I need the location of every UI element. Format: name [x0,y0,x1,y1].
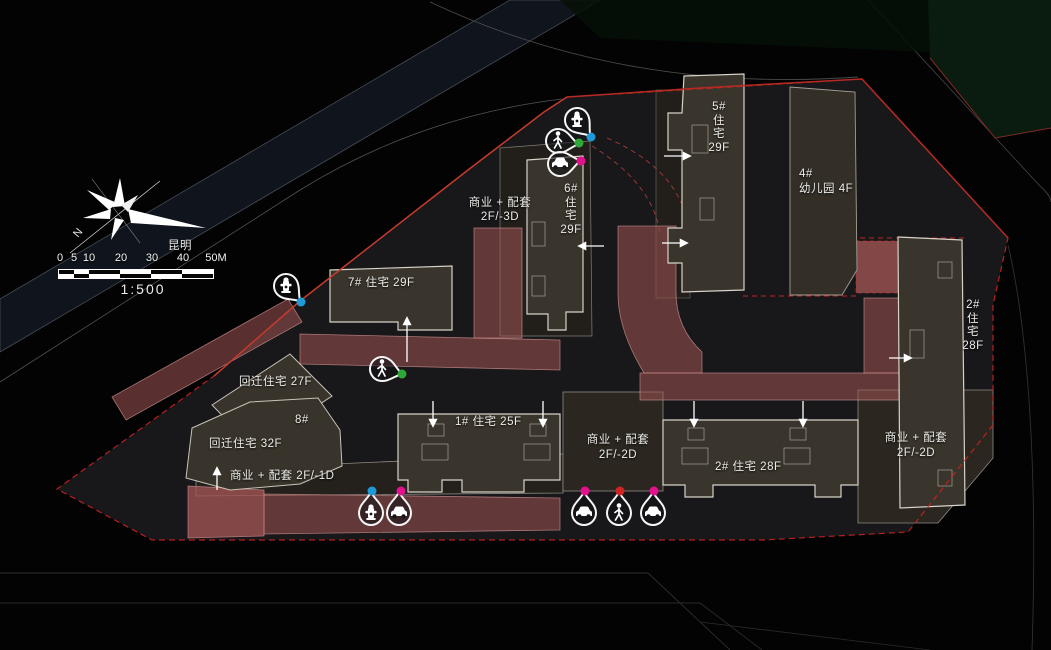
scale-tick: 50M [205,252,226,264]
label-building-2-east: 2# 住 宅 28F [962,299,983,353]
pedestrian-marker-dot-red [616,487,625,496]
hydrant-marker-dot-blue [297,298,306,307]
scale-ratio: 1:500 [120,283,165,297]
north-label: N [71,226,85,240]
label-commercial-2d-mid: 商业 + 配套 2F/-2D [587,433,650,463]
car-marker-dot-magenta [581,487,590,496]
label-building-7: 7# 住宅 29F [348,277,415,291]
scale-tick: 20 [115,252,127,264]
site-plan: N 昆明 0 5 10 20 30 40 50M 1:500 5# 住 宅 29… [0,0,1051,650]
label-huiqian-27: 回迁住宅 27F [239,376,312,390]
building-2-east [898,237,965,508]
scale-bar-graphic [58,269,214,279]
car-marker-dot-magenta [650,487,659,496]
label-huiqian-32: 回迁住宅 32F [209,438,282,452]
scale-tick: 10 [83,252,95,264]
label-building-4-kindergarten: 4# 幼儿园 4F [799,167,853,197]
scale-tick: 30 [146,252,158,264]
scale-tick: 0 [57,252,63,264]
label-commercial-1d: 商业 + 配套 2F/-1D [230,470,334,484]
label-commercial-3d: 商业 + 配套 2F/-3D [469,196,532,224]
label-building-8: 8# [295,414,309,428]
building-7 [330,266,452,330]
pedestrian-marker-dot-green [398,370,407,379]
pedestrian-marker-dot-green [575,139,584,148]
label-building-1: 1# 住宅 25F [455,416,522,430]
hydrant-marker-dot-blue [368,487,377,496]
car-marker-dot-magenta [577,157,586,166]
site-plan-drawing: N [0,0,1051,650]
car-marker-dot-magenta [397,487,406,496]
building-2-south [663,420,858,497]
label-building-2-south: 2# 住宅 28F [715,461,782,475]
label-building-5: 5# 住 宅 29F [708,101,729,155]
scale-tick: 5 [71,252,77,264]
scale-tick: 40 [177,252,189,264]
label-building-6: 6# 住 宅 29F [560,183,581,237]
hydrant-marker-dot-blue [587,133,596,142]
label-commercial-2d-east: 商业 + 配套 2F/-2D [885,431,948,461]
